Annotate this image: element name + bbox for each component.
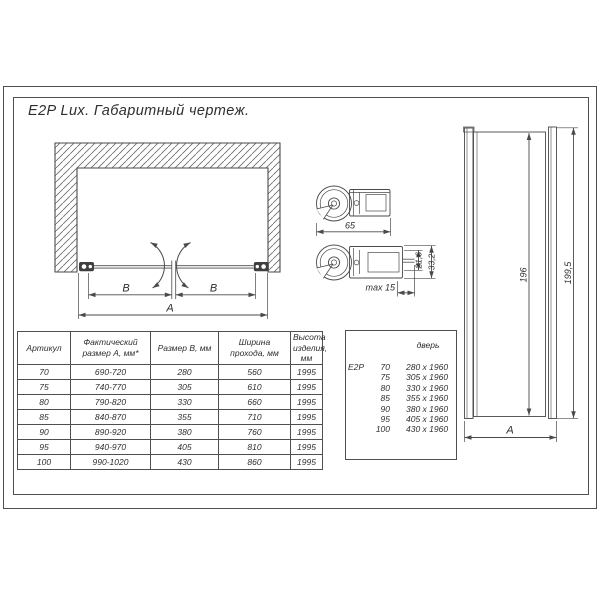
size-code: 75 [374, 372, 390, 382]
series-label [348, 372, 374, 382]
dim-label-a-side: A [505, 425, 513, 437]
table-cell: 760 [219, 424, 291, 439]
door-dimensions: 405 x 1960 [390, 414, 454, 424]
table-cell: 610 [219, 379, 291, 394]
side-view: 196 199,5 A [464, 127, 579, 442]
table-cell: 690-720 [71, 364, 151, 379]
door-size-row: 100 430 x 1960 [348, 424, 454, 434]
table-cell: 280 [151, 364, 219, 379]
wall-hatch [55, 143, 280, 272]
size-code: 100 [374, 424, 390, 434]
table-cell: 70 [18, 364, 71, 379]
door-dimensions: 280 x 1960 [390, 362, 454, 372]
door-dimensions: 355 x 1960 [390, 393, 454, 403]
series-label [348, 383, 374, 393]
size-code: 70 [374, 362, 390, 372]
table-header-row: Артикул Фактический размер А, мм* Размер… [18, 332, 323, 365]
door-size-row: 75 305 x 1960 [348, 372, 454, 382]
table-cell: 80 [18, 394, 71, 409]
table-row: 70 690-720 280 560 1995 [18, 364, 323, 379]
size-code: 90 [374, 404, 390, 414]
door-size-table-header: дверь [402, 340, 454, 350]
table-cell: 85 [18, 409, 71, 424]
table-cell: 405 [151, 439, 219, 454]
table-row: 90 890-920 380 760 1995 [18, 424, 323, 439]
front-view: B B A [55, 143, 280, 319]
door-size-table: дверь E2P 70 280 x 1960 75 305 x 1960 80… [345, 330, 457, 460]
table-cell: 710 [219, 409, 291, 424]
table-cell: 990-1020 [71, 454, 151, 469]
table-cell: 430 [151, 454, 219, 469]
door-size-row: 90 380 x 1960 [348, 404, 454, 414]
table-cell: 1995 [291, 394, 323, 409]
door-size-row: 80 330 x 1960 [348, 383, 454, 393]
side-view-dimensions [465, 128, 579, 442]
technical-drawing: B B A 65 [0, 0, 600, 600]
col-header-size-b: Размер В, мм [151, 332, 219, 365]
door-dimensions: 305 x 1960 [390, 372, 454, 382]
table-row: 95 940-970 405 810 1995 [18, 439, 323, 454]
dim-label-65: 65 [345, 221, 356, 231]
detail-bottom-profile: max 15 21,6 33,2 [317, 245, 437, 297]
table-cell: 740-770 [71, 379, 151, 394]
table-cell: 1995 [291, 454, 323, 469]
table-cell: 355 [151, 409, 219, 424]
col-header-actual-size-a: Фактический размер А, мм* [71, 332, 151, 365]
table-row: 80 790-820 330 660 1995 [18, 394, 323, 409]
table-cell: 890-920 [71, 424, 151, 439]
table-cell: 90 [18, 424, 71, 439]
door-dimensions: 430 x 1960 [390, 424, 454, 434]
table-cell: 75 [18, 379, 71, 394]
table-cell: 810 [219, 439, 291, 454]
table-cell: 1995 [291, 409, 323, 424]
table-cell: 860 [219, 454, 291, 469]
wall-profile-left [465, 128, 474, 419]
table-cell: 560 [219, 364, 291, 379]
wall-profile-right [549, 127, 557, 419]
door-dimensions: 330 x 1960 [390, 383, 454, 393]
table-cell: 95 [18, 439, 71, 454]
door-panels [94, 266, 254, 268]
detail-top-profile: 65 [317, 186, 391, 236]
table-cell: 380 [151, 424, 219, 439]
table-cell: 660 [219, 394, 291, 409]
series-label [348, 393, 374, 403]
col-header-articul: Артикул [18, 332, 71, 365]
dim-label-a-front: A [165, 303, 173, 315]
door-hinge-left [79, 262, 94, 271]
door-panel-side [474, 132, 546, 417]
dimensions-table: Артикул Фактический размер А, мм* Размер… [17, 331, 323, 470]
table-cell: 100 [18, 454, 71, 469]
table-cell: 790-820 [71, 394, 151, 409]
col-header-product-height: Высота изделия, мм [291, 332, 323, 365]
dim-label-max15: max 15 [365, 283, 396, 293]
door-size-row: E2P 70 280 x 1960 [348, 362, 454, 372]
dim-label-b-right: B [210, 283, 217, 295]
table-row: 100 990-1020 430 860 1995 [18, 454, 323, 469]
table-row: 75 740-770 305 610 1995 [18, 379, 323, 394]
series-label [348, 424, 374, 434]
dim-label-21-6: 21,6 [414, 252, 424, 270]
dim-label-196: 196 [519, 267, 529, 282]
table-cell: 1995 [291, 439, 323, 454]
col-header-passage-width: Ширина прохода, мм [219, 332, 291, 365]
series-label [348, 404, 374, 414]
table-cell: 1995 [291, 424, 323, 439]
door-hinge-right [254, 262, 269, 271]
table-cell: 1995 [291, 379, 323, 394]
table-cell: 940-970 [71, 439, 151, 454]
series-label [348, 414, 374, 424]
size-code: 80 [374, 383, 390, 393]
door-size-row: 85 355 x 1960 [348, 393, 454, 403]
door-size-row: 95 405 x 1960 [348, 414, 454, 424]
size-code: 85 [374, 393, 390, 403]
dim-label-199-5: 199,5 [563, 261, 573, 285]
size-code: 95 [374, 414, 390, 424]
table-cell: 305 [151, 379, 219, 394]
table-cell: 1995 [291, 364, 323, 379]
series-label: E2P [348, 362, 374, 372]
table-row: 85 840-870 355 710 1995 [18, 409, 323, 424]
dim-label-b-left: B [122, 283, 129, 295]
door-dimensions: 380 x 1960 [390, 404, 454, 414]
table-cell: 330 [151, 394, 219, 409]
table-cell: 840-870 [71, 409, 151, 424]
dim-label-33-2: 33,2 [427, 253, 437, 270]
